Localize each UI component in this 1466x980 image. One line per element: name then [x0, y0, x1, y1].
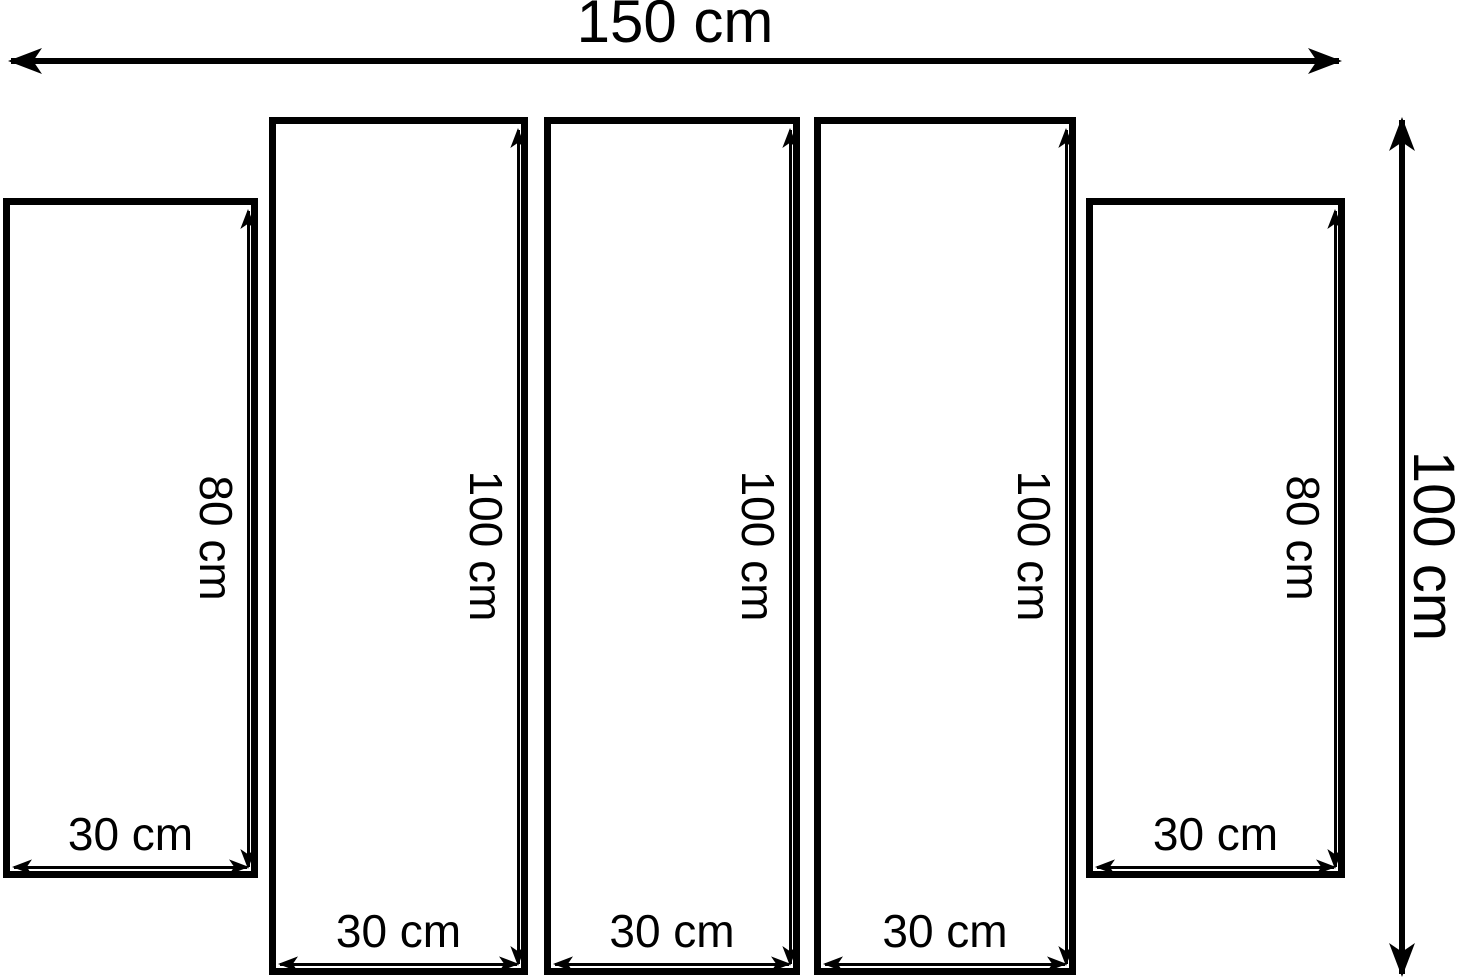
panel-4-width-label: 30 cm [821, 908, 1069, 954]
arrow-shaft [14, 866, 247, 869]
panel-3-height-label: 100 cm [735, 471, 781, 622]
panel-1-width-arrow [12, 858, 249, 876]
arrow-shaft [1065, 130, 1068, 964]
overall-height-label: 100 cm [1404, 451, 1462, 641]
arrow-shaft [1097, 866, 1334, 869]
panel-3-width-arrow [553, 955, 791, 973]
arrow-shaft [247, 211, 250, 867]
arrow-shaft [555, 963, 789, 966]
panel-5: 80 cm 30 cm [1086, 198, 1345, 878]
panel-2-width-arrow [278, 955, 519, 973]
panel-4-width-arrow [823, 955, 1067, 973]
panel-2: 100 cm 30 cm [269, 117, 528, 975]
arrow-shaft [789, 130, 792, 964]
panel-5-width-arrow [1095, 858, 1336, 876]
arrow-shaft [825, 963, 1065, 966]
panel-5-width-label: 30 cm [1093, 811, 1338, 857]
panel-4-height-label: 100 cm [1011, 471, 1057, 622]
overall-width-label: 150 cm [577, 0, 774, 52]
panel-1: 80 cm 30 cm [3, 198, 258, 878]
canvas-panel-dimension-diagram: 150 cm 100 cm 80 cm 30 cm 100 cm [0, 0, 1466, 980]
arrow-shaft [280, 963, 517, 966]
arrow-shaft [11, 58, 1339, 64]
arrow-shaft [1334, 211, 1337, 867]
panel-5-height-label: 80 cm [1280, 475, 1326, 600]
panel-1-height-label: 80 cm [193, 475, 239, 600]
arrow-shaft [517, 130, 520, 964]
panel-1-width-label: 30 cm [10, 811, 251, 857]
panel-3-width-label: 30 cm [551, 908, 793, 954]
panel-3: 100 cm 30 cm [544, 117, 800, 975]
panel-2-height-label: 100 cm [463, 471, 509, 622]
panel-2-width-label: 30 cm [276, 908, 521, 954]
panel-4: 100 cm 30 cm [814, 117, 1076, 975]
